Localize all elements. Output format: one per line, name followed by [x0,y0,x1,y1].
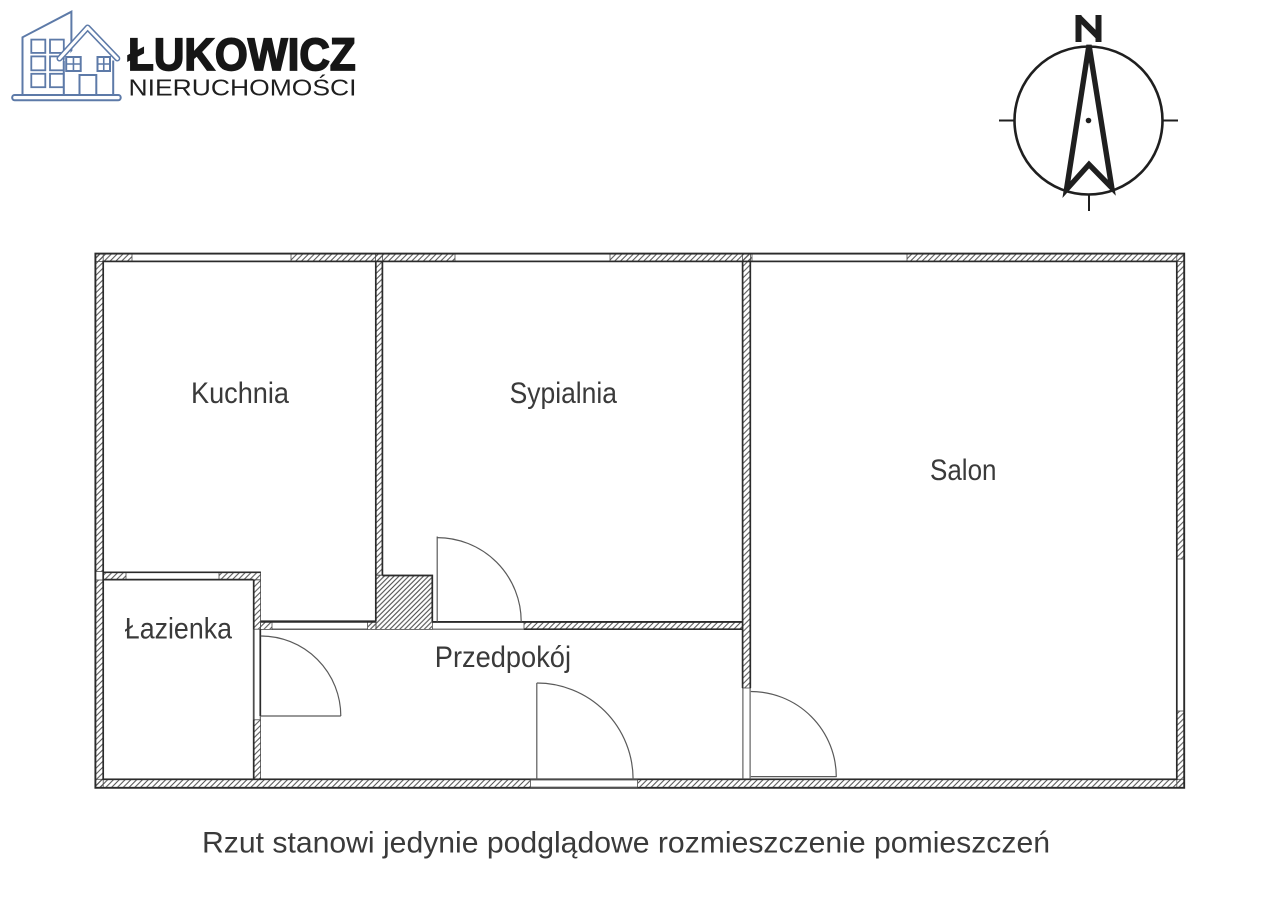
svg-text:NIERUCHOMOŚCI: NIERUCHOMOŚCI [129,74,357,101]
svg-text:Rzut stanowi jedynie podglądow: Rzut stanowi jedynie podglądowe rozmiesz… [202,827,1050,860]
svg-text:Łazienka: Łazienka [125,612,232,645]
svg-text:Salon: Salon [930,454,997,487]
svg-text:Przedpokój: Przedpokój [435,641,571,674]
svg-text:ŁUKOWICZ: ŁUKOWICZ [128,29,356,80]
svg-text:Sypialnia: Sypialnia [510,377,618,410]
svg-text:Kuchnia: Kuchnia [191,377,289,410]
